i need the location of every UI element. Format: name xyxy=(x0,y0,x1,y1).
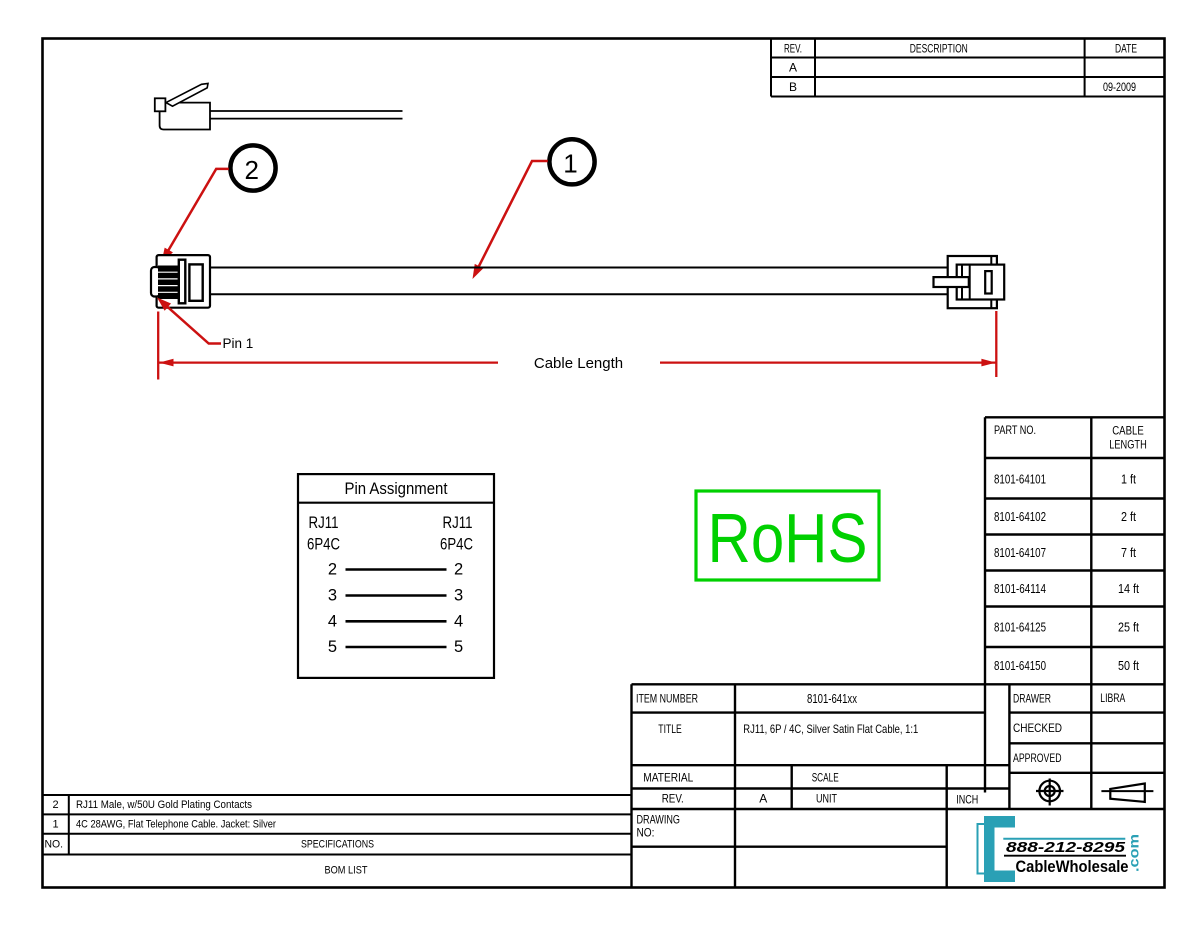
svg-text:50 ft: 50 ft xyxy=(1118,658,1139,673)
svg-text:8101-64107: 8101-64107 xyxy=(994,545,1046,560)
svg-text:8101-64114: 8101-64114 xyxy=(994,581,1046,596)
svg-text:8101-641xx: 8101-641xx xyxy=(807,691,857,706)
svg-text:25 ft: 25 ft xyxy=(1118,619,1139,634)
svg-text:6P4C: 6P4C xyxy=(440,536,473,554)
svg-text:09-2009: 09-2009 xyxy=(1103,80,1136,94)
svg-text:SPECIFICATIONS: SPECIFICATIONS xyxy=(301,838,374,850)
svg-text:4: 4 xyxy=(454,612,463,630)
svg-text:7 ft: 7 ft xyxy=(1121,545,1136,560)
svg-text:DATE: DATE xyxy=(1115,42,1137,56)
svg-text:6P4C: 6P4C xyxy=(307,536,340,554)
svg-text:RJ11, 6P / 4C, Silver Satin Fl: RJ11, 6P / 4C, Silver Satin Flat Cable, … xyxy=(743,722,918,736)
svg-text:RoHS: RoHS xyxy=(708,499,868,577)
svg-text:RJ11: RJ11 xyxy=(309,514,339,532)
svg-text:Pin Assignment: Pin Assignment xyxy=(345,480,448,498)
svg-text:14 ft: 14 ft xyxy=(1118,581,1139,596)
svg-text:DRAWING: DRAWING xyxy=(637,813,681,827)
svg-text:4C 28AWG, Flat Telephone Cable: 4C 28AWG, Flat Telephone Cable. Jacket: … xyxy=(76,818,276,830)
svg-text:LENGTH: LENGTH xyxy=(1109,438,1147,452)
svg-text:5: 5 xyxy=(328,638,337,656)
svg-text:888-212-8295: 888-212-8295 xyxy=(1006,840,1126,856)
svg-text:CableWholesale: CableWholesale xyxy=(1016,857,1129,876)
svg-text:REV.: REV. xyxy=(662,792,684,806)
svg-text:MATERIAL: MATERIAL xyxy=(643,771,693,785)
svg-text:3: 3 xyxy=(454,587,463,605)
svg-text:8101-64102: 8101-64102 xyxy=(994,509,1046,524)
svg-text:2: 2 xyxy=(52,799,58,811)
svg-text:LIBRA: LIBRA xyxy=(1100,691,1125,705)
svg-text:INCH: INCH xyxy=(956,793,978,807)
svg-text:2: 2 xyxy=(328,561,337,579)
svg-text:8101-64101: 8101-64101 xyxy=(994,471,1046,486)
svg-text:CHECKED: CHECKED xyxy=(1013,721,1062,735)
svg-text:B: B xyxy=(789,80,797,94)
svg-text:TITLE: TITLE xyxy=(658,722,682,736)
svg-text:Pin 1: Pin 1 xyxy=(223,336,254,351)
svg-text:1 ft: 1 ft xyxy=(1121,471,1136,486)
svg-text:PART NO.: PART NO. xyxy=(994,423,1036,437)
svg-text:RJ11 Male, w/50U Gold Plating: RJ11 Male, w/50U Gold Plating Contacts xyxy=(76,799,252,811)
svg-text:NO:: NO: xyxy=(637,826,655,840)
svg-text:A: A xyxy=(759,792,767,806)
svg-text:NO.: NO. xyxy=(45,838,64,850)
svg-text:CABLE: CABLE xyxy=(1112,424,1144,438)
svg-text:RJ11: RJ11 xyxy=(443,514,473,532)
svg-text:BOM LIST: BOM LIST xyxy=(325,864,368,876)
svg-text:Cable Length: Cable Length xyxy=(534,355,623,372)
svg-text:3: 3 xyxy=(328,587,337,605)
svg-text:1: 1 xyxy=(563,149,577,179)
svg-text:A: A xyxy=(789,61,797,75)
svg-text:1: 1 xyxy=(52,818,58,830)
svg-text:.com: .com xyxy=(1126,834,1142,872)
svg-text:8101-64150: 8101-64150 xyxy=(994,658,1046,673)
svg-text:ITEM NUMBER: ITEM NUMBER xyxy=(636,692,698,706)
svg-text:APPROVED: APPROVED xyxy=(1013,751,1062,765)
svg-text:2: 2 xyxy=(244,155,258,185)
svg-text:REV.: REV. xyxy=(784,42,802,56)
svg-text:2: 2 xyxy=(454,561,463,579)
svg-text:DRAWER: DRAWER xyxy=(1013,692,1051,706)
svg-text:DESCRIPTION: DESCRIPTION xyxy=(910,42,968,56)
svg-text:5: 5 xyxy=(454,638,463,656)
svg-text:UNIT: UNIT xyxy=(816,792,837,806)
svg-text:SCALE: SCALE xyxy=(812,771,839,785)
svg-text:8101-64125: 8101-64125 xyxy=(994,619,1046,634)
svg-text:4: 4 xyxy=(328,612,337,630)
svg-text:2 ft: 2 ft xyxy=(1121,509,1136,524)
